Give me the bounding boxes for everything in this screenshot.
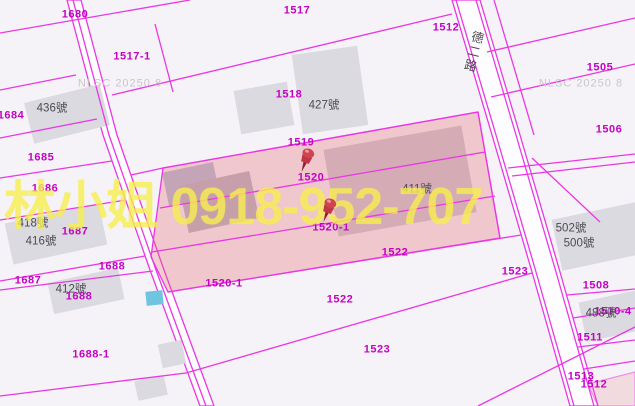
parcel-number-label: 1523: [502, 267, 528, 278]
parcel-number-label: 1506: [596, 125, 622, 136]
road-name-label: 德二路: [461, 29, 484, 74]
house-number-label: 488號: [586, 308, 617, 320]
parcel-number-label: 1512: [433, 23, 459, 34]
parcel-number-label: 1520-1: [205, 279, 242, 290]
parcel-number-label: 1687: [15, 276, 41, 287]
parcel-number-label: 1684: [0, 111, 24, 122]
parcel-number-label: 1685: [28, 153, 54, 164]
nlsc-watermark: NLSC 20250 8: [539, 79, 623, 90]
house-number-label: 412號: [56, 284, 87, 296]
parcel-number-label: 1680: [62, 10, 88, 21]
nlsc-watermark: NLSC 20250 8: [78, 79, 162, 90]
parcel-number-label: 1517: [284, 6, 310, 17]
agent-watermark-text: 林小姐 0918-952-707: [4, 164, 635, 239]
parcel-number-label: 1522: [382, 248, 408, 259]
parcel-number-label: 1505: [587, 63, 613, 74]
parcel-number-label: 1688: [99, 262, 125, 273]
parcel-number-label: 1517-1: [113, 52, 150, 63]
house-number-label: 436號: [37, 103, 68, 115]
parcel-number-label: 1508: [583, 281, 609, 292]
house-number-label: 427號: [309, 100, 340, 112]
house-number-label: 500號: [564, 238, 595, 250]
parcel-number-label: 1523: [364, 345, 390, 356]
parcel-number-label: 1512: [581, 380, 607, 391]
parcel-number-label: 1511: [577, 333, 603, 344]
cadastral-map[interactable]: 1680151715121517-11505151816841506151916…: [0, 0, 635, 406]
parcel-number-label: 1519: [288, 138, 314, 149]
parcel-number-label: 1688-1: [72, 350, 109, 361]
parcel-number-label: 1522: [327, 295, 353, 306]
parcel-number-label: 1518: [276, 90, 302, 101]
